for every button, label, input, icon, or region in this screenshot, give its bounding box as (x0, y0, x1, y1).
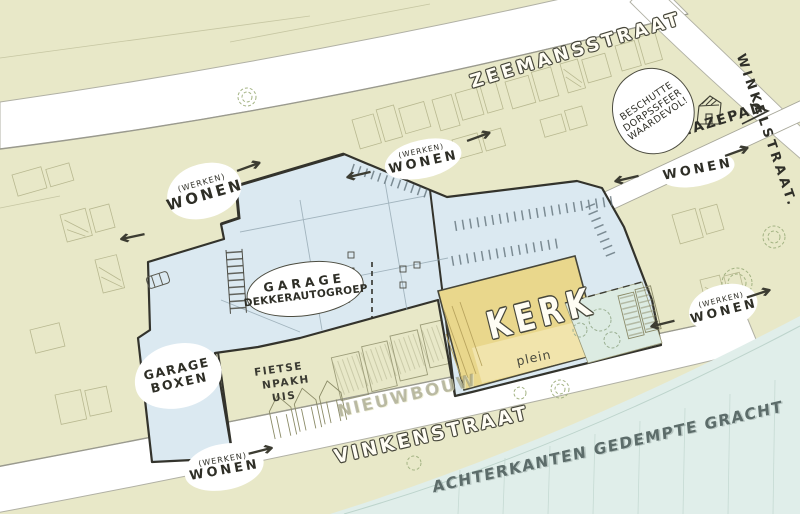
direction-arrow: ← (116, 223, 148, 248)
direction-arrow: ← (646, 310, 678, 336)
fietsenpakhuis-label: FIETSE NPAKH UIS (253, 358, 312, 408)
direction-arrow: → (244, 437, 276, 463)
urban-sketch-page: { "colors": { "background": "#e8e8c8", "… (0, 0, 800, 514)
direction-arrow: ← (610, 165, 642, 191)
direction-arrow: ← (342, 161, 374, 187)
